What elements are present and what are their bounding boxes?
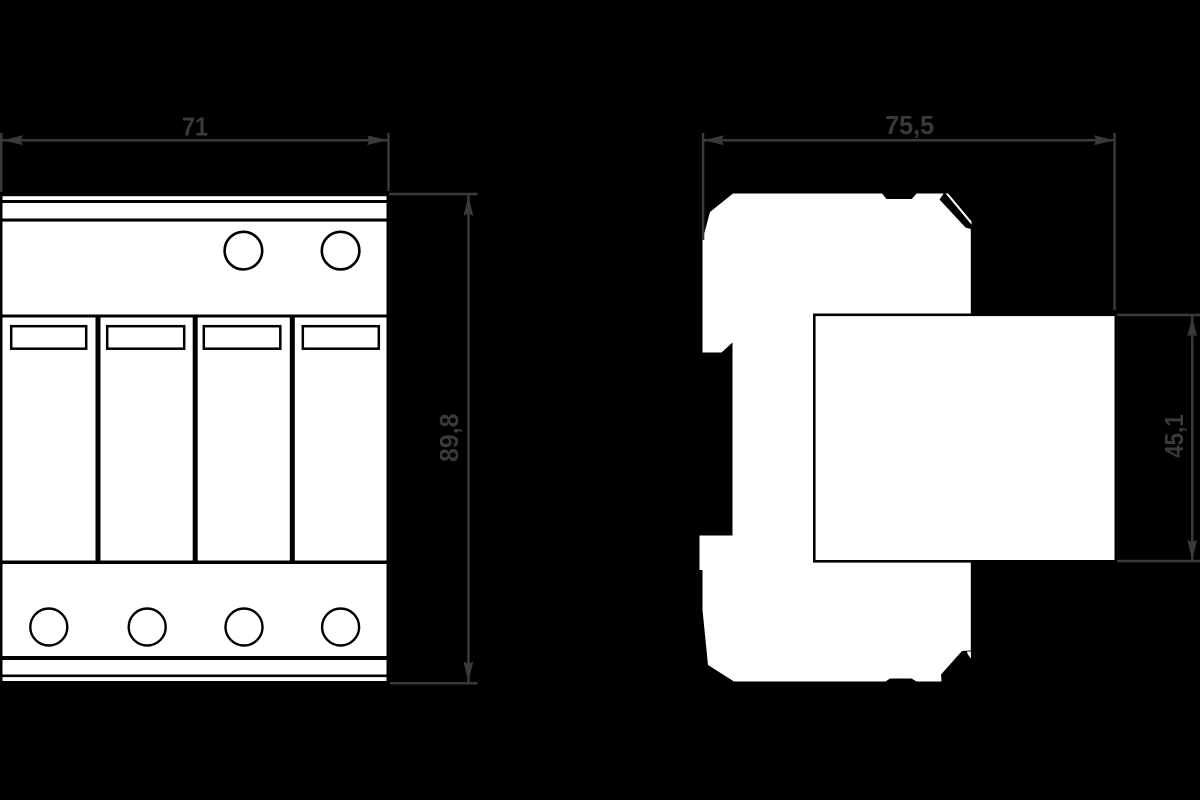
svg-text:45,1: 45,1	[1159, 414, 1189, 458]
svg-text:75,5: 75,5	[885, 110, 934, 140]
svg-text:89,8: 89,8	[434, 413, 464, 462]
svg-text:71: 71	[182, 112, 208, 142]
